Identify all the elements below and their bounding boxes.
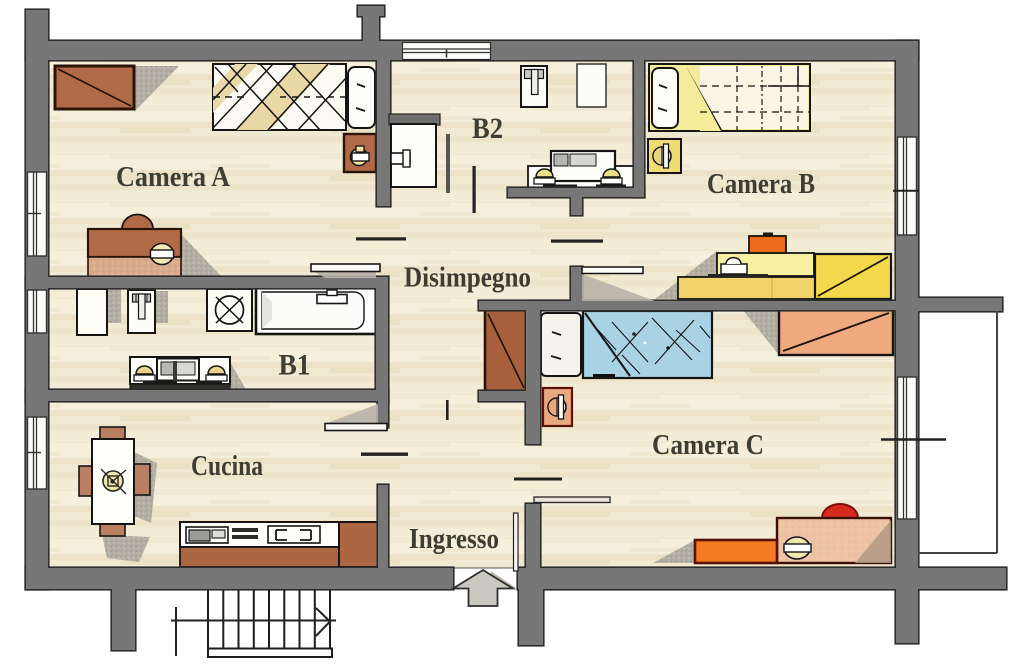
svg-text:Camera A: Camera A [116,161,230,193]
svg-text:Ingresso: Ingresso [409,523,499,555]
svg-text:B2: B2 [472,112,503,145]
svg-text:B1: B1 [279,349,311,382]
svg-text:Disimpegno: Disimpegno [404,262,531,294]
svg-text:Camera C: Camera C [652,429,764,461]
svg-text:Cucina: Cucina [191,450,263,482]
svg-text:Camera B: Camera B [707,168,815,200]
